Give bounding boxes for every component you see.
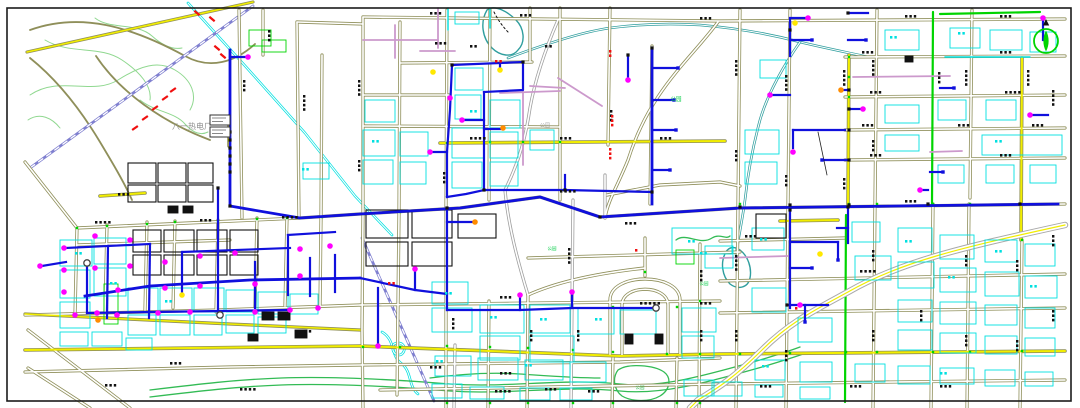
green-road [845, 215, 846, 402]
heat-station-node [790, 149, 796, 155]
heat-station-node [197, 283, 203, 289]
pipe-endpoint [810, 266, 813, 269]
street-name-text-mark [785, 179, 787, 182]
street-name-text-mark [692, 240, 694, 243]
intersection-dot [106, 225, 108, 227]
street-name-text-mark [564, 190, 566, 193]
street-name-text-mark [358, 169, 360, 172]
street-name-text-mark [443, 176, 445, 179]
street-name-text-mark [300, 330, 302, 333]
street-name-text-mark [568, 248, 570, 251]
street-name-text-mark [560, 137, 562, 140]
street-name-text-mark [1052, 235, 1054, 238]
intersection-dot [572, 402, 574, 404]
intersection-dot [876, 351, 878, 353]
street-name-text-mark [1052, 90, 1054, 93]
junction-node [650, 190, 653, 193]
street-name-text-mark [609, 157, 611, 160]
street-name-text-mark [700, 302, 702, 305]
street-name-text-mark [872, 64, 874, 67]
street-name-text-mark [920, 319, 922, 322]
street-name-text-mark [785, 354, 787, 357]
intersection-dot [848, 76, 850, 78]
pump-station-node [500, 125, 506, 131]
pipe-endpoint [864, 38, 867, 41]
intersection-dot [446, 402, 448, 404]
intersection-dot [489, 346, 491, 348]
street-name-text-mark [909, 200, 911, 203]
street-name-text-mark [872, 149, 874, 152]
plant-label-box-text [212, 118, 226, 119]
street-name-text-mark [862, 124, 864, 127]
junction-node [228, 204, 231, 207]
street-name-text-mark [209, 219, 211, 222]
intersection-dot [676, 402, 678, 404]
intersection-dot [932, 351, 934, 353]
street-name-text-mark [914, 15, 916, 18]
building-block [248, 334, 258, 341]
street-name-text-mark [843, 83, 845, 86]
street-name-text-mark [520, 14, 522, 17]
intersection-dot [146, 223, 148, 225]
street-name-text-mark [609, 148, 611, 151]
pipe-endpoint [836, 258, 839, 261]
street-name-text-mark [872, 144, 874, 147]
street-name-text-mark [1036, 124, 1038, 127]
street-name-text-mark [1005, 91, 1007, 94]
road [363, 126, 560, 127]
heat-pipeline [149, 244, 150, 318]
heat-station-node [797, 302, 803, 308]
pump-station-node [472, 219, 478, 225]
street-name-text-mark [890, 36, 892, 39]
junction-node [482, 188, 485, 191]
street-name-text-mark [735, 259, 737, 262]
street-name-text-mark [174, 362, 176, 365]
street-name-text-mark [1004, 51, 1006, 54]
street-name-text-mark [1009, 51, 1011, 54]
street-name-text-mark [573, 190, 575, 193]
street-name-text-mark [577, 334, 579, 337]
street-name-text-mark [940, 385, 942, 388]
street-name-text-mark [104, 221, 106, 224]
intersection-dot [174, 221, 176, 223]
street-name-text-mark [872, 334, 874, 337]
street-name-text-mark [999, 250, 1001, 253]
heat-station-node [1040, 15, 1046, 21]
junction-node [228, 154, 231, 157]
street-name-text-mark [569, 137, 571, 140]
building-block [278, 312, 290, 320]
heat-station-node [412, 266, 418, 272]
street-name-text-mark [358, 84, 360, 87]
street-name-text-mark [1018, 91, 1020, 94]
street-name-text-mark [358, 89, 360, 92]
street-name-text-mark [735, 255, 737, 258]
street-name-text-mark [449, 292, 451, 295]
street-name-text-mark [688, 240, 690, 243]
map-label: 公园 [548, 246, 557, 252]
street-name-text-mark [1052, 319, 1054, 322]
heat-station-node [315, 305, 321, 311]
street-name-text-mark [525, 364, 527, 367]
street-name-text-mark [653, 302, 655, 305]
street-name-text-mark [95, 221, 97, 224]
street-name-text-mark [470, 137, 472, 140]
street-name-text-mark [872, 254, 874, 257]
junction-node [216, 186, 219, 189]
street-name-text-mark [470, 45, 472, 48]
street-name-text-mark [1027, 79, 1029, 82]
street-name-text-mark [1000, 51, 1002, 54]
street-name-text-mark [872, 73, 874, 76]
street-name-text-mark [949, 385, 951, 388]
street-name-text-mark [372, 140, 374, 143]
street-name-text-mark [843, 182, 845, 185]
street-name-text-mark [909, 15, 911, 18]
street-name-text-mark [392, 282, 394, 285]
street-name-text-mark [577, 330, 579, 333]
building-block [183, 206, 193, 213]
street-name-text-mark [499, 390, 501, 393]
junction-node [228, 162, 231, 165]
heat-station-node [37, 263, 43, 269]
junction-node [445, 206, 448, 209]
heat-station-node [127, 237, 133, 243]
street-name-text-mark [118, 193, 120, 196]
intersection-dot [848, 96, 850, 98]
street-name-text-mark [914, 200, 916, 203]
street-name-text-mark [709, 17, 711, 20]
street-name-text-mark [735, 73, 737, 76]
street-name-text-mark [1052, 244, 1054, 247]
street-name-text-mark [200, 219, 202, 222]
street-name-text-mark [577, 339, 579, 342]
street-name-text-mark [303, 108, 305, 111]
street-name-text-mark [795, 307, 797, 310]
street-name-text-mark [509, 372, 511, 375]
street-name-text-mark [872, 339, 874, 342]
well-node [653, 305, 659, 311]
junction-node [228, 138, 231, 141]
street-name-text-mark [530, 334, 532, 337]
street-name-text-mark [766, 365, 768, 368]
street-name-text-mark [79, 252, 81, 255]
intersection-dot [699, 300, 701, 302]
street-name-text-mark [529, 14, 531, 17]
street-name-text-mark [745, 235, 747, 238]
street-name-text-mark [474, 110, 476, 113]
street-name-text-mark [609, 50, 611, 53]
street-name-text-mark [735, 264, 737, 267]
city-heating-network-map: 八一热电厂公园公园公园公园公园 [0, 0, 1080, 408]
junction-node [788, 208, 791, 211]
street-name-text-mark [995, 250, 997, 253]
heat-station-node [115, 287, 121, 293]
street-name-text-mark [760, 385, 762, 388]
street-name-text-mark [634, 222, 636, 225]
street-name-text-mark [1032, 124, 1034, 127]
street-name-text-mark [854, 385, 856, 388]
street-name-text-mark [785, 184, 787, 187]
building-block [655, 334, 663, 344]
street-name-text-mark [944, 385, 946, 388]
street-name-text-mark [999, 140, 1001, 143]
heat-station-node [459, 117, 465, 123]
junction-node [1018, 202, 1021, 205]
street-name-text-mark [660, 137, 662, 140]
street-name-text-mark [268, 30, 270, 33]
street-name-text-mark [965, 74, 967, 77]
street-name-text-mark [894, 36, 896, 39]
heat-station-node [252, 309, 258, 315]
street-name-text-mark [122, 193, 124, 196]
street-name-text-mark [436, 360, 438, 363]
street-name-text-mark [965, 339, 967, 342]
street-name-text-mark [1027, 83, 1029, 86]
map-viewport: 八一热电厂公园公园公园公园公园 [0, 0, 1080, 408]
map-label: 公园 [636, 385, 645, 391]
street-name-text-mark [962, 124, 964, 127]
street-name-text-mark [474, 137, 476, 140]
street-name-text-mark [1009, 91, 1011, 94]
street-name-text-mark [1016, 264, 1018, 267]
street-name-text-mark [965, 335, 967, 338]
street-name-text-mark [965, 83, 967, 86]
heat-station-node [252, 281, 258, 287]
street-name-text-mark [304, 330, 306, 333]
street-name-text-mark [664, 137, 666, 140]
valve-node [792, 20, 798, 26]
heat-station-node [61, 267, 67, 273]
street-name-text-mark [735, 268, 737, 271]
street-name-text-mark [1016, 344, 1018, 347]
street-name-text-mark [358, 164, 360, 167]
street-name-text-mark [445, 292, 447, 295]
heat-station-node [287, 307, 293, 313]
street-name-text-mark [872, 250, 874, 253]
heat-station-node [114, 312, 120, 318]
street-name-text-mark [560, 190, 562, 193]
street-name-text-mark [470, 110, 472, 113]
street-name-text-mark [965, 79, 967, 82]
heat-station-node [162, 259, 168, 265]
street-name-text-mark [509, 296, 511, 299]
street-name-text-mark [843, 74, 845, 77]
heat-station-node [72, 312, 78, 318]
street-name-text-mark [1016, 349, 1018, 352]
heat-station-node [61, 245, 67, 251]
street-name-text-mark [549, 45, 551, 48]
street-name-text-mark [1016, 260, 1018, 263]
plant-label-box [210, 127, 230, 137]
street-name-text-mark [962, 32, 964, 35]
street-name-text-mark [358, 93, 360, 96]
street-name-text-mark [249, 388, 251, 391]
pipe-endpoint [674, 128, 677, 131]
street-name-text-mark [479, 137, 481, 140]
street-name-text-mark [530, 330, 532, 333]
heat-station-node [92, 265, 98, 271]
street-name-text-mark [282, 216, 284, 219]
street-name-text-mark [358, 80, 360, 83]
intersection-dot [789, 352, 791, 354]
street-name-text-mark [595, 318, 597, 321]
street-name-text-mark [114, 282, 116, 285]
junction-node [847, 158, 850, 161]
street-name-text-mark [700, 274, 702, 277]
street-name-text-mark [700, 339, 702, 342]
street-name-text-mark [1016, 340, 1018, 343]
road [454, 345, 455, 408]
junction-node [847, 107, 850, 110]
street-name-text-mark [785, 75, 787, 78]
street-name-text-mark [704, 252, 706, 255]
street-name-text-mark [545, 388, 547, 391]
street-name-text-mark [439, 12, 441, 15]
street-name-text-mark [735, 60, 737, 63]
street-name-text-mark [871, 124, 873, 127]
map-label: 公园 [540, 123, 550, 129]
junction-node [785, 303, 788, 306]
street-name-text-mark [700, 270, 702, 273]
street-name-text-mark [938, 76, 940, 79]
street-name-text-mark [704, 17, 706, 20]
heat-station-node [327, 243, 333, 249]
building-block [625, 334, 633, 344]
road [699, 244, 700, 408]
building-block [905, 56, 913, 62]
street-name-text-mark [530, 339, 532, 342]
valve-node [179, 292, 185, 298]
plum-road [853, 76, 950, 77]
street-name-text-mark [439, 366, 441, 369]
street-name-text-mark [388, 282, 390, 285]
street-name-text-mark [909, 240, 911, 243]
street-name-text-mark [700, 17, 702, 20]
street-name-text-mark [952, 276, 954, 279]
street-name-text-mark [764, 385, 766, 388]
intersection-dot [612, 351, 614, 353]
street-name-text-mark [1000, 154, 1002, 157]
street-name-text-mark [504, 390, 506, 393]
street-name-text-mark [920, 310, 922, 313]
street-name-text-mark [905, 240, 907, 243]
street-name-text-mark [303, 99, 305, 102]
street-name-text-mark [735, 69, 737, 72]
well-node [217, 312, 223, 318]
street-name-text-mark [588, 390, 590, 393]
heat-pipeline [107, 246, 108, 318]
well-node [84, 260, 90, 266]
pipe-endpoint [803, 320, 806, 323]
street-name-text-mark [610, 110, 612, 113]
street-name-text-mark [850, 385, 852, 388]
heat-station-node [569, 289, 575, 295]
intersection-dot [739, 203, 741, 205]
street-name-text-mark [105, 384, 107, 387]
street-name-text-mark [944, 372, 946, 375]
street-name-text-mark [1004, 15, 1006, 18]
street-name-text-mark [869, 270, 871, 273]
main-road [780, 220, 838, 221]
pump-station-node [838, 87, 844, 93]
street-name-text-mark [568, 257, 570, 260]
street-name-text-mark [870, 154, 872, 157]
street-name-text-mark [244, 388, 246, 391]
street-name-text-mark [127, 193, 129, 196]
intersection-dot [527, 347, 529, 349]
heat-station-node [187, 309, 193, 315]
street-name-text-mark [597, 390, 599, 393]
heat-station-node [297, 246, 303, 252]
street-name-text-mark [764, 238, 766, 241]
junction-node [846, 205, 849, 208]
pipe-endpoint [941, 170, 944, 173]
street-name-text-mark [490, 316, 492, 319]
street-name-text-mark [499, 60, 501, 63]
street-name-text-mark [735, 64, 737, 67]
street-name-text-mark [452, 322, 454, 325]
street-name-text-mark [635, 249, 637, 252]
building-block [262, 312, 274, 320]
street-name-text-mark [866, 51, 868, 54]
street-name-text-mark [995, 140, 997, 143]
street-name-text-mark [302, 168, 304, 171]
valve-node [817, 251, 823, 257]
street-name-text-mark [871, 51, 873, 54]
street-name-text-mark [500, 296, 502, 299]
heat-station-node [232, 250, 238, 256]
street-name-text-mark [735, 154, 737, 157]
junction-node [738, 205, 741, 208]
street-name-text-mark [611, 119, 613, 122]
street-name-text-mark [958, 124, 960, 127]
street-name-text-mark [611, 124, 613, 127]
street-name-text-mark [1052, 99, 1054, 102]
heat-station-node [860, 106, 866, 112]
street-name-text-mark [568, 252, 570, 255]
street-name-text-mark [504, 372, 506, 375]
junction-node [926, 202, 929, 205]
street-name-text-mark [872, 330, 874, 333]
street-name-text-mark [444, 42, 446, 45]
junction-node [788, 203, 791, 206]
street-name-text-mark [785, 84, 787, 87]
street-name-text-mark [640, 302, 642, 305]
pipe-endpoint [668, 168, 671, 171]
street-name-text-mark [286, 216, 288, 219]
heat-station-node [245, 54, 251, 60]
junction-node [228, 170, 231, 173]
main-road [1021, 57, 1022, 240]
street-name-text-mark [965, 255, 967, 258]
valve-node [497, 67, 503, 73]
street-name-text-mark [109, 384, 111, 387]
street-name-text-mark [735, 339, 737, 342]
street-name-text-mark [874, 154, 876, 157]
street-name-text-mark [843, 178, 845, 181]
street-name-text-mark [864, 270, 866, 273]
street-name-text-mark [443, 181, 445, 184]
heat-station-node [625, 77, 631, 83]
street-name-text-mark [474, 45, 476, 48]
street-name-text-mark [1034, 285, 1036, 288]
building-block [168, 206, 178, 213]
intersection-dot [559, 141, 561, 143]
heat-station-node [297, 273, 303, 279]
street-name-text-mark [958, 32, 960, 35]
